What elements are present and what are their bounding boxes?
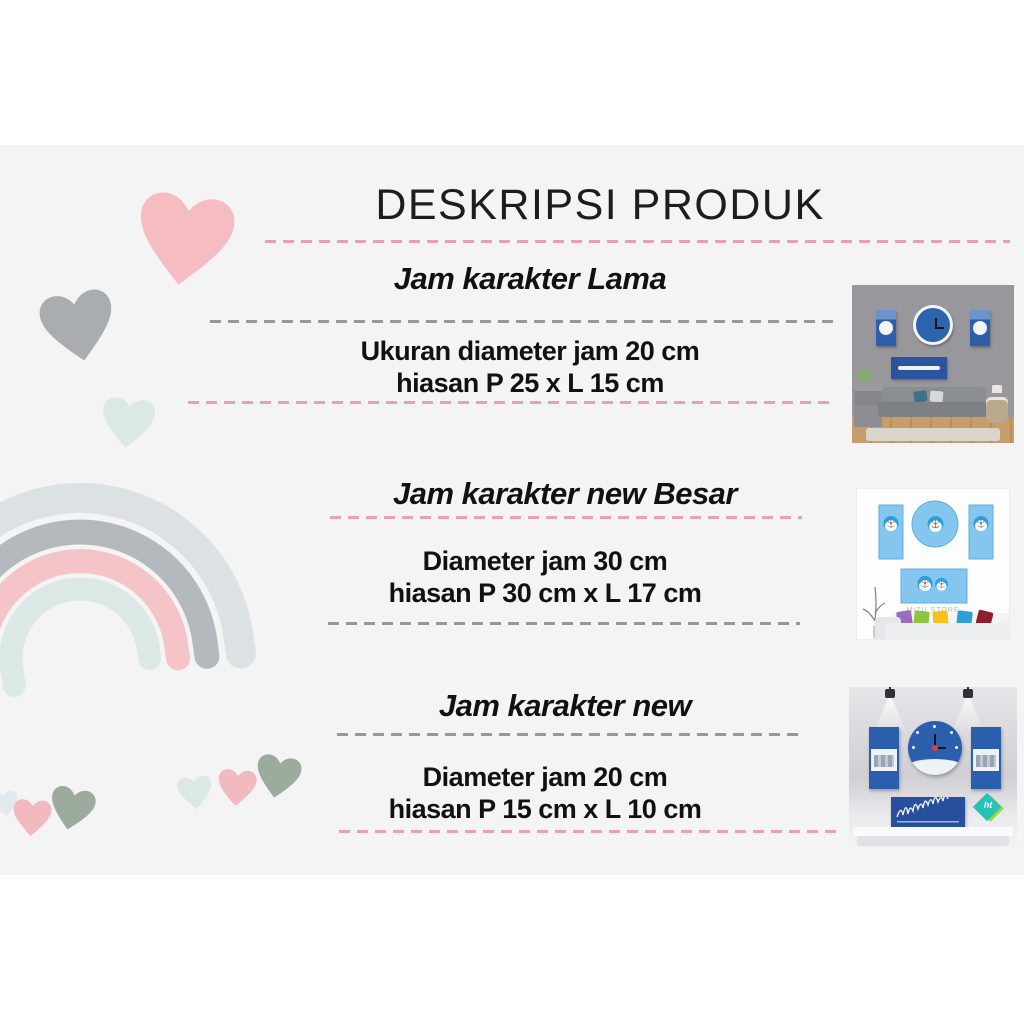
section-specs: Diameter jam 30 cm hiasan P 30 cm x L 17… xyxy=(215,545,875,609)
gray-heart-icon xyxy=(37,287,120,367)
spec-line: Diameter jam 20 cm xyxy=(215,761,875,793)
store-logo-monogram: ht xyxy=(976,800,1000,810)
section-specs: Ukuran diameter jam 20 cm hiasan P 25 x … xyxy=(200,335,860,399)
section-heading-jam-karakter-new-besar: Jam karakter new Besar xyxy=(235,476,895,512)
product-description-poster: DESKRIPSI PRODUK Jam karakter Lama Ukura… xyxy=(0,0,1024,1024)
hearts-decoration xyxy=(20,160,310,470)
rainbow-arc-mint xyxy=(2,580,151,685)
dashed-divider xyxy=(330,516,802,519)
mint-heart-icon xyxy=(99,396,156,451)
calligraphy-panel xyxy=(891,797,965,827)
dashed-divider xyxy=(339,830,836,833)
spec-line: hiasan P 25 x L 15 cm xyxy=(200,367,860,399)
section-heading-jam-karakter-lama: Jam karakter Lama xyxy=(200,261,860,297)
clock-hub xyxy=(932,745,938,751)
spec-line: hiasan P 15 cm x L 10 cm xyxy=(215,793,875,825)
product-photo-jam-karakter-new: ht xyxy=(849,687,1017,850)
wall-clock xyxy=(913,305,953,345)
rug xyxy=(866,428,1000,441)
plant xyxy=(858,369,872,381)
dashed-divider xyxy=(328,622,800,625)
cushion xyxy=(930,390,944,402)
wall-panel-right xyxy=(971,727,1001,789)
spec-line: hiasan P 30 cm x L 17 cm xyxy=(215,577,875,609)
spec-line: Diameter jam 30 cm xyxy=(215,545,875,577)
wall-clock xyxy=(908,721,962,775)
clock-wave xyxy=(908,759,962,775)
dashed-divider xyxy=(210,320,838,323)
wall-panel-right xyxy=(970,310,990,346)
calligraphy-disc xyxy=(973,321,987,335)
sofa-seat xyxy=(878,402,990,417)
branch-decor xyxy=(863,587,885,621)
dashed-divider xyxy=(265,240,1010,243)
spec-line: Ukuran diameter jam 20 cm xyxy=(200,335,860,367)
dashed-divider xyxy=(188,401,836,404)
product-photo-jam-karakter-new-besar: MIZU STORE xyxy=(856,488,1010,640)
spotlight-icon xyxy=(963,689,973,698)
calligraphy-disc xyxy=(879,321,893,335)
spotlight-icon xyxy=(885,689,895,698)
wicker-side-table xyxy=(986,397,1008,423)
table-lamp xyxy=(992,385,1002,393)
clock-hand xyxy=(936,327,944,329)
calligraphy-panel xyxy=(891,357,947,379)
wall-panel-left xyxy=(876,310,896,346)
city-skyline xyxy=(874,755,894,767)
cushion xyxy=(913,390,927,402)
display-pedestal-front xyxy=(857,836,1009,846)
clock-face xyxy=(916,308,950,342)
section-heading-jam-karakter-new: Jam karakter new xyxy=(235,688,895,724)
section-specs: Diameter jam 20 cm hiasan P 15 cm x L 10… xyxy=(215,761,875,825)
page-title: DESKRIPSI PRODUK xyxy=(300,181,900,230)
wall-panel-left xyxy=(869,727,899,789)
city-skyline xyxy=(976,755,996,767)
display-pedestal xyxy=(853,827,1013,836)
dashed-divider xyxy=(337,733,800,736)
sofa-seat xyxy=(885,623,1009,639)
product-photo-jam-karakter-lama xyxy=(852,285,1014,443)
